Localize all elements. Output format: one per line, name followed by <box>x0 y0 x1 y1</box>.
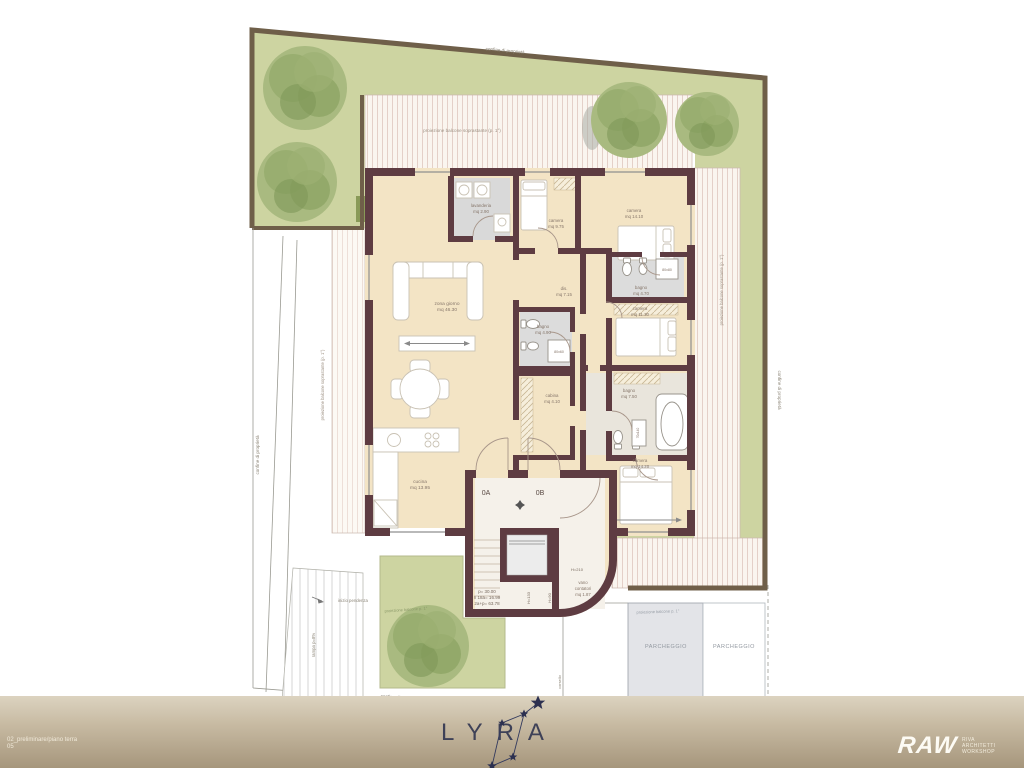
tree <box>257 142 337 222</box>
sheet-info-line2: 05 <box>7 744 77 751</box>
door-height: H=210 <box>571 567 584 572</box>
unit-b-label: 0B <box>536 490 545 497</box>
boundary-right-label: confine di proprietà <box>777 370 782 410</box>
raw-subtext: RIVA ARCHITETTI WORKSHOP <box>962 737 995 755</box>
star-icon <box>509 753 518 761</box>
projection-right-label: proiezione balcone soprastante (p. 1°) <box>719 254 724 325</box>
star-icon <box>498 719 506 726</box>
driveway-label: corsello <box>557 674 562 689</box>
living-name: zona giorno <box>434 301 459 307</box>
deck-bottom-right <box>612 538 765 588</box>
studio-logo-raw: RAW RIVA ARCHITETTI WORKSHOP <box>898 734 995 758</box>
camera2-name: camera <box>627 208 642 213</box>
closet-area: mq 4.10 <box>544 399 560 404</box>
stair-line2: n 18a= 16.99 <box>474 595 501 600</box>
bath1-name: bagno <box>635 285 648 290</box>
parking-right-label: PARCHEGGIO <box>713 644 755 650</box>
ramp-start-label: inizio pendenza <box>338 598 368 603</box>
stair-line1: p= 30.00 <box>478 589 496 594</box>
h1-label: H=133 <box>526 591 531 604</box>
kitchen-name: cucina <box>413 479 427 485</box>
star-icon <box>487 761 497 768</box>
camera4-name: camera <box>633 458 648 463</box>
deck-left <box>332 228 365 533</box>
closet-name: cabina <box>546 393 559 398</box>
bath3-name: bagno <box>623 388 636 393</box>
h2-label: H=90 <box>547 592 552 602</box>
driveway-ramp <box>282 568 363 700</box>
meters-l3: mq 1.87 <box>575 592 591 597</box>
bath1-area: mq 4.70 <box>633 291 649 296</box>
deck-right <box>694 168 740 588</box>
bath2-area: mq 4.90 <box>535 330 551 335</box>
camera4-area: mq 14.20 <box>631 464 650 469</box>
tree <box>387 605 469 687</box>
camera1-area: mq 9.75 <box>548 224 564 229</box>
shower2-size: 80x60 <box>554 350 564 354</box>
unit-a-label: 0A <box>482 490 491 497</box>
bed-double <box>616 318 676 356</box>
bath3-area: mq 7.50 <box>621 394 637 399</box>
camera3-name: camera <box>633 306 648 311</box>
bed-single <box>521 180 547 230</box>
bed-double <box>610 466 682 524</box>
shower1-size: 80x80 <box>662 268 672 272</box>
tub-size: 70x140 <box>636 428 640 439</box>
sheet-info-line1: 02_preliminare/piano terra <box>7 737 77 744</box>
boundary-left-label: confine di proprietà <box>255 435 260 475</box>
projection-left-label: proiezione balcone soprastante (p. 1°) <box>320 349 325 420</box>
camera2-area: mq 14.10 <box>625 214 644 219</box>
parking-left-label: PARCHEGGIO <box>645 644 687 650</box>
parking-spot-left <box>628 603 703 708</box>
lyra-constellation <box>465 690 575 768</box>
sheet-info: 02_preliminare/piano terra 05 <box>7 737 77 751</box>
sideboard <box>399 336 475 351</box>
hall-area: mq 7.15 <box>556 292 572 297</box>
hall-name: dis. <box>561 286 568 291</box>
meters-l2: contatori <box>575 586 592 591</box>
camera3-area: mq 11.30 <box>631 312 650 317</box>
meters-l1: vano <box>578 580 588 585</box>
parking-area: PARCHEGGIO PARCHEGGIO proiezione balcone… <box>628 603 765 708</box>
floorplan-sheet: PARCHEGGIO PARCHEGGIO proiezione balcone… <box>0 0 1024 768</box>
projection-top-label: proiezione balcone soprastante (p. 1°) <box>423 128 501 133</box>
kitchen-area: mq 13.95 <box>410 485 430 491</box>
laundry-name: lavanderia <box>471 203 492 208</box>
parking-spot-right <box>703 603 765 708</box>
bath2-name: bagno <box>537 324 550 329</box>
living-area: mq 46.30 <box>437 307 457 313</box>
star-icon <box>520 710 529 718</box>
camera1-name: camera <box>549 218 564 223</box>
ramp-slope-label: rampa p=8% <box>311 633 316 658</box>
stair-line3: 2a+p= 63.78 <box>474 601 500 606</box>
site-plan-drawing: PARCHEGGIO PARCHEGGIO proiezione balcone… <box>0 0 1024 768</box>
tree <box>675 92 739 156</box>
laundry-area: mq 2.90 <box>473 209 489 214</box>
tree <box>591 82 667 158</box>
raw-wordmark: RAW <box>897 734 959 758</box>
tree <box>263 46 347 130</box>
